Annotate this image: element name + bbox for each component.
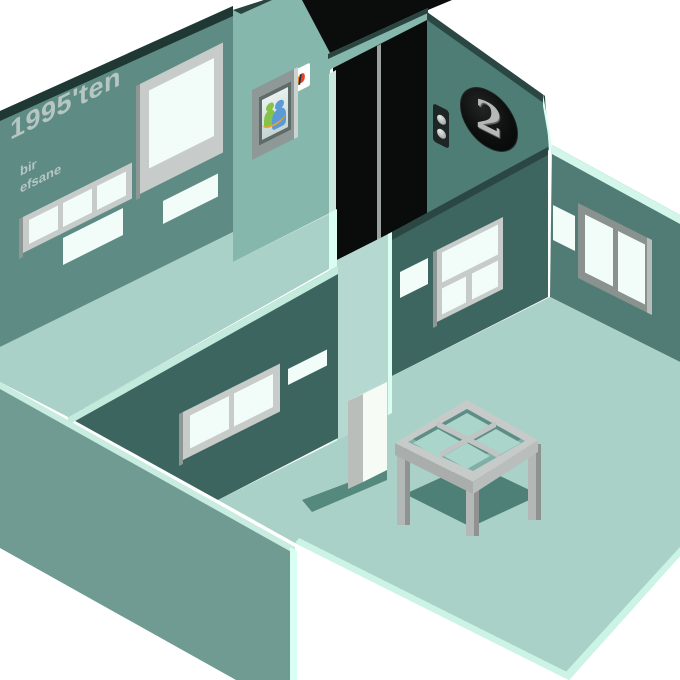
window-pane — [585, 215, 613, 287]
frame-side-edge — [294, 67, 298, 139]
window-pane — [149, 58, 214, 169]
call-button-down — [437, 126, 446, 140]
frame-side-edge — [647, 238, 652, 316]
window-pane — [618, 231, 645, 305]
call-button-up — [437, 112, 446, 126]
floor-number-digit: 2 — [475, 93, 503, 147]
isometric-room-scene: 1995'ten bir efsane msn — [0, 0, 680, 680]
window-pane — [442, 276, 466, 314]
elevator-call-panel — [433, 103, 449, 149]
